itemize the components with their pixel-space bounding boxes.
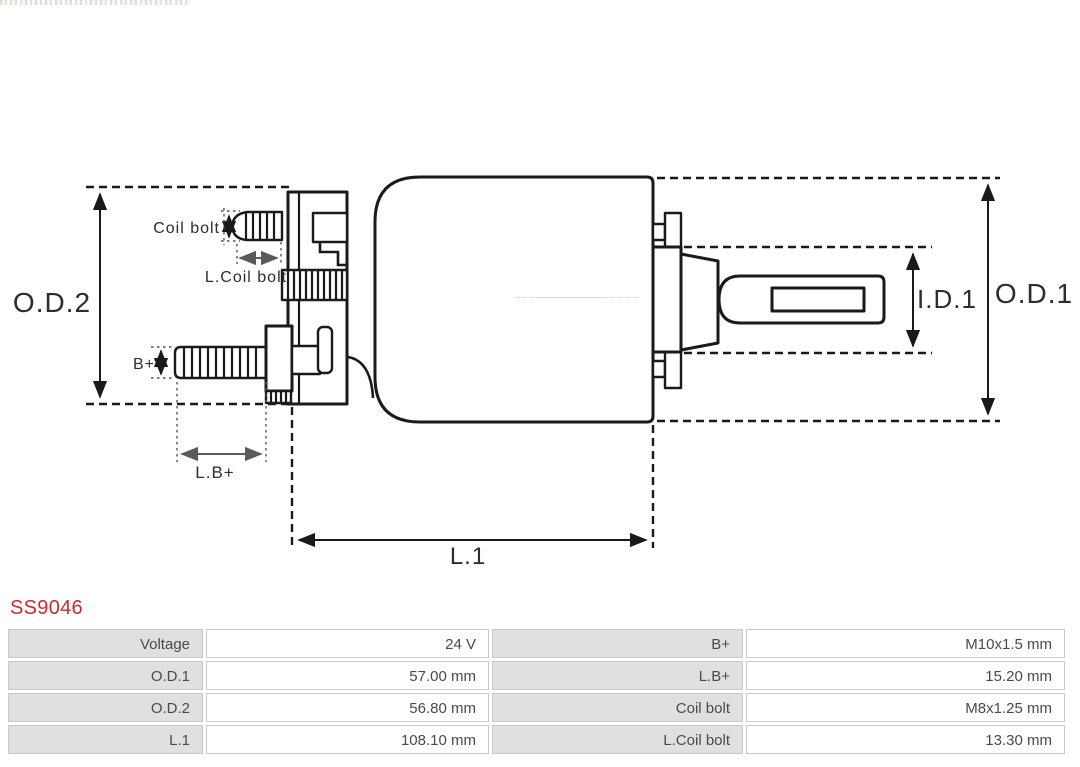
dim-label-b-plus: B+ [133, 356, 155, 373]
spec-value-coil-bolt: M8x1.25 mm [746, 693, 1065, 722]
spec-value-l1: 108.10 mm [206, 725, 489, 754]
spec-label-l-b-plus: L.B+ [492, 661, 743, 690]
spec-label-voltage: Voltage [8, 629, 203, 658]
solenoid-diagram-svg: O.D.2 O.D.1 I.D.1 L.1 Coil bolt L.Coil b… [0, 0, 1080, 590]
spec-label-b-plus: B+ [492, 629, 743, 658]
plunger-assembly [653, 247, 884, 352]
spec-value-voltage: 24 V [206, 629, 489, 658]
terminal-tab-bottom [653, 352, 681, 388]
spec-label-l1: L.1 [8, 725, 203, 754]
part-number: SS9046 [10, 597, 83, 620]
dim-label-l1: L.1 [450, 543, 486, 570]
spec-label-od1: O.D.1 [8, 661, 203, 690]
spec-value-l-coil-bolt: 13.30 mm [746, 725, 1065, 754]
terminal-tab-top [653, 213, 681, 249]
spec-table: Voltage 24 V B+ M10x1.5 mm O.D.1 57.00 m… [8, 629, 1065, 754]
dim-label-l-b-plus: L.B+ [195, 463, 234, 482]
solenoid-technical-diagram: O.D.2 O.D.1 I.D.1 L.1 Coil bolt L.Coil b… [0, 0, 1080, 590]
spec-value-l-b-plus: 15.20 mm [746, 661, 1065, 690]
construction-lines [151, 208, 281, 462]
spec-value-b-plus: M10x1.5 mm [746, 629, 1065, 658]
dim-label-id1: I.D.1 [917, 284, 977, 314]
spec-label-l-coil-bolt: L.Coil bolt [492, 725, 743, 754]
coil-bolt-bushing [282, 270, 347, 300]
spec-value-od2: 56.80 mm [206, 693, 489, 722]
spec-value-od1: 57.00 mm [206, 661, 489, 690]
spec-label-od2: O.D.2 [8, 693, 203, 722]
dim-label-od1: O.D.1 [995, 278, 1073, 309]
coil-bolt-terminal [232, 212, 282, 240]
dim-label-l-coil-bolt: L.Coil bolt [205, 269, 287, 286]
dim-label-coil-bolt: Coil bolt [153, 220, 220, 237]
watermark [516, 297, 640, 301]
dim-label-od2: O.D.2 [13, 287, 91, 318]
spec-label-coil-bolt: Coil bolt [492, 693, 743, 722]
